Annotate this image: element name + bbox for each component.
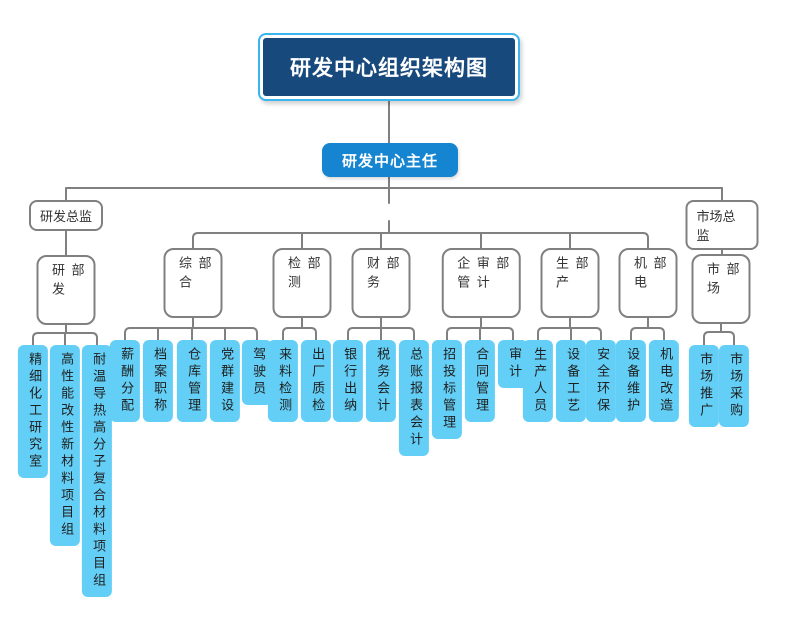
leaf-em-renovation[interactable]: 机电改造 <box>649 340 679 422</box>
leaf-fine-chemical-lab[interactable]: 精细化工研究室 <box>18 345 48 478</box>
connector-rd-leaves <box>33 322 97 345</box>
leaf-label: 党群建设 <box>216 347 234 415</box>
leaf-label: 审计 <box>504 347 522 381</box>
leaf-label: 仓库管理 <box>183 347 201 415</box>
leaf-production-staff[interactable]: 生产人员 <box>523 340 553 422</box>
leaf-bank-cashier[interactable]: 银行出纳 <box>333 340 363 422</box>
chart-title-node[interactable]: 研发中心组织架构图 <box>258 33 520 101</box>
leaf-label: 精细化工研究室 <box>24 352 42 471</box>
dept-finance-node[interactable]: 财务部 <box>352 248 411 318</box>
dept-audit-label: 企管审计部 <box>452 256 511 310</box>
dept-production-node[interactable]: 生产部 <box>541 248 600 318</box>
leaf-label: 总账报表会计 <box>405 347 423 449</box>
market-director-node[interactable]: 市场总监 <box>686 200 759 250</box>
leaf-label: 生产人员 <box>529 347 547 415</box>
leaf-label: 安全环保 <box>592 347 610 415</box>
connector-audit-leaves <box>447 317 513 340</box>
chart-title: 研发中心组织架构图 <box>290 52 488 82</box>
leaf-label: 银行出纳 <box>339 347 357 415</box>
leaf-label: 市场采购 <box>725 352 743 420</box>
connector-finance-leaves <box>348 317 414 340</box>
dept-audit-node[interactable]: 企管审计部 <box>442 248 521 318</box>
dept-general-label: 综合部 <box>174 256 213 310</box>
leaf-label: 招投标管理 <box>438 347 456 432</box>
dept-production-label: 生产部 <box>551 256 590 310</box>
leaf-safety-environment[interactable]: 安全环保 <box>586 340 616 422</box>
connector-inspection-leaves <box>283 317 316 340</box>
connector-directors-bar <box>66 176 722 200</box>
dept-general-node[interactable]: 综合部 <box>164 248 223 318</box>
market-director-label: 市场总监 <box>697 206 748 244</box>
leaf-bidding-mgmt[interactable]: 招投标管理 <box>432 340 462 439</box>
leaf-high-perf-materials-group[interactable]: 高性能改性新材料项目组 <box>50 345 80 546</box>
rd-director-label: 研发总监 <box>40 206 92 225</box>
leaf-label: 高性能改性新材料项目组 <box>56 352 74 539</box>
leaf-label: 来料检测 <box>274 347 292 415</box>
dept-rd-label: 研发部 <box>47 263 86 317</box>
leaf-label: 合同管理 <box>471 347 489 415</box>
rd-director-node[interactable]: 研发总监 <box>29 200 103 231</box>
leaf-label: 薪酬分配 <box>116 347 134 415</box>
leaf-market-promotion[interactable]: 市场推广 <box>689 345 719 427</box>
dept-market-node[interactable]: 市场部 <box>692 254 751 324</box>
leaf-label: 市场推广 <box>695 352 713 420</box>
connector-departments-bar <box>193 233 648 248</box>
leaf-archives-titles[interactable]: 档案职称 <box>143 340 173 422</box>
head-label: 研发中心主任 <box>342 150 438 171</box>
leaf-equipment-maintenance[interactable]: 设备维护 <box>616 340 646 422</box>
leaf-heat-resistant-polymer-group[interactable]: 耐温导热高分子复合材料项目组 <box>82 345 112 597</box>
leaf-label: 档案职称 <box>149 347 167 415</box>
leaf-salary-distribution[interactable]: 薪酬分配 <box>110 340 140 422</box>
head-node[interactable]: 研发中心主任 <box>322 143 458 177</box>
leaf-equipment-process[interactable]: 设备工艺 <box>556 340 586 422</box>
leaf-market-procurement[interactable]: 市场采购 <box>719 345 749 427</box>
leaf-ledger-report-accounting[interactable]: 总账报表会计 <box>399 340 429 456</box>
leaf-label: 设备维护 <box>622 347 640 415</box>
leaf-party-building[interactable]: 党群建设 <box>210 340 240 422</box>
leaf-warehouse-mgmt[interactable]: 仓库管理 <box>177 340 207 422</box>
dept-market-label: 市场部 <box>702 262 741 316</box>
leaf-contract-mgmt[interactable]: 合同管理 <box>465 340 495 422</box>
connector-production-leaves <box>538 317 601 340</box>
dept-finance-label: 财务部 <box>362 256 401 310</box>
connector-em-leaves <box>631 317 664 340</box>
leaf-incoming-inspection[interactable]: 来料检测 <box>268 340 298 422</box>
leaf-label: 设备工艺 <box>562 347 580 415</box>
dept-inspection-label: 检测部 <box>283 256 322 310</box>
dept-em-node[interactable]: 机电部 <box>619 248 678 318</box>
leaf-label: 机电改造 <box>655 347 673 415</box>
org-chart-canvas: 研发中心组织架构图 研发中心主任 研发总监 市场总监 研发部 综合部 检测部 财… <box>0 0 795 641</box>
leaf-outgoing-qc[interactable]: 出厂质检 <box>301 340 331 422</box>
leaf-label: 耐温导热高分子复合材料项目组 <box>88 352 106 590</box>
dept-inspection-node[interactable]: 检测部 <box>273 248 332 318</box>
leaf-tax-accounting[interactable]: 税务会计 <box>366 340 396 422</box>
dept-em-label: 机电部 <box>629 256 668 310</box>
connector-general-leaves <box>125 317 257 340</box>
leaf-label: 出厂质检 <box>307 347 325 415</box>
dept-rd-node[interactable]: 研发部 <box>37 255 96 325</box>
leaf-label: 税务会计 <box>372 347 390 415</box>
leaf-label: 驾驶员 <box>248 347 266 398</box>
